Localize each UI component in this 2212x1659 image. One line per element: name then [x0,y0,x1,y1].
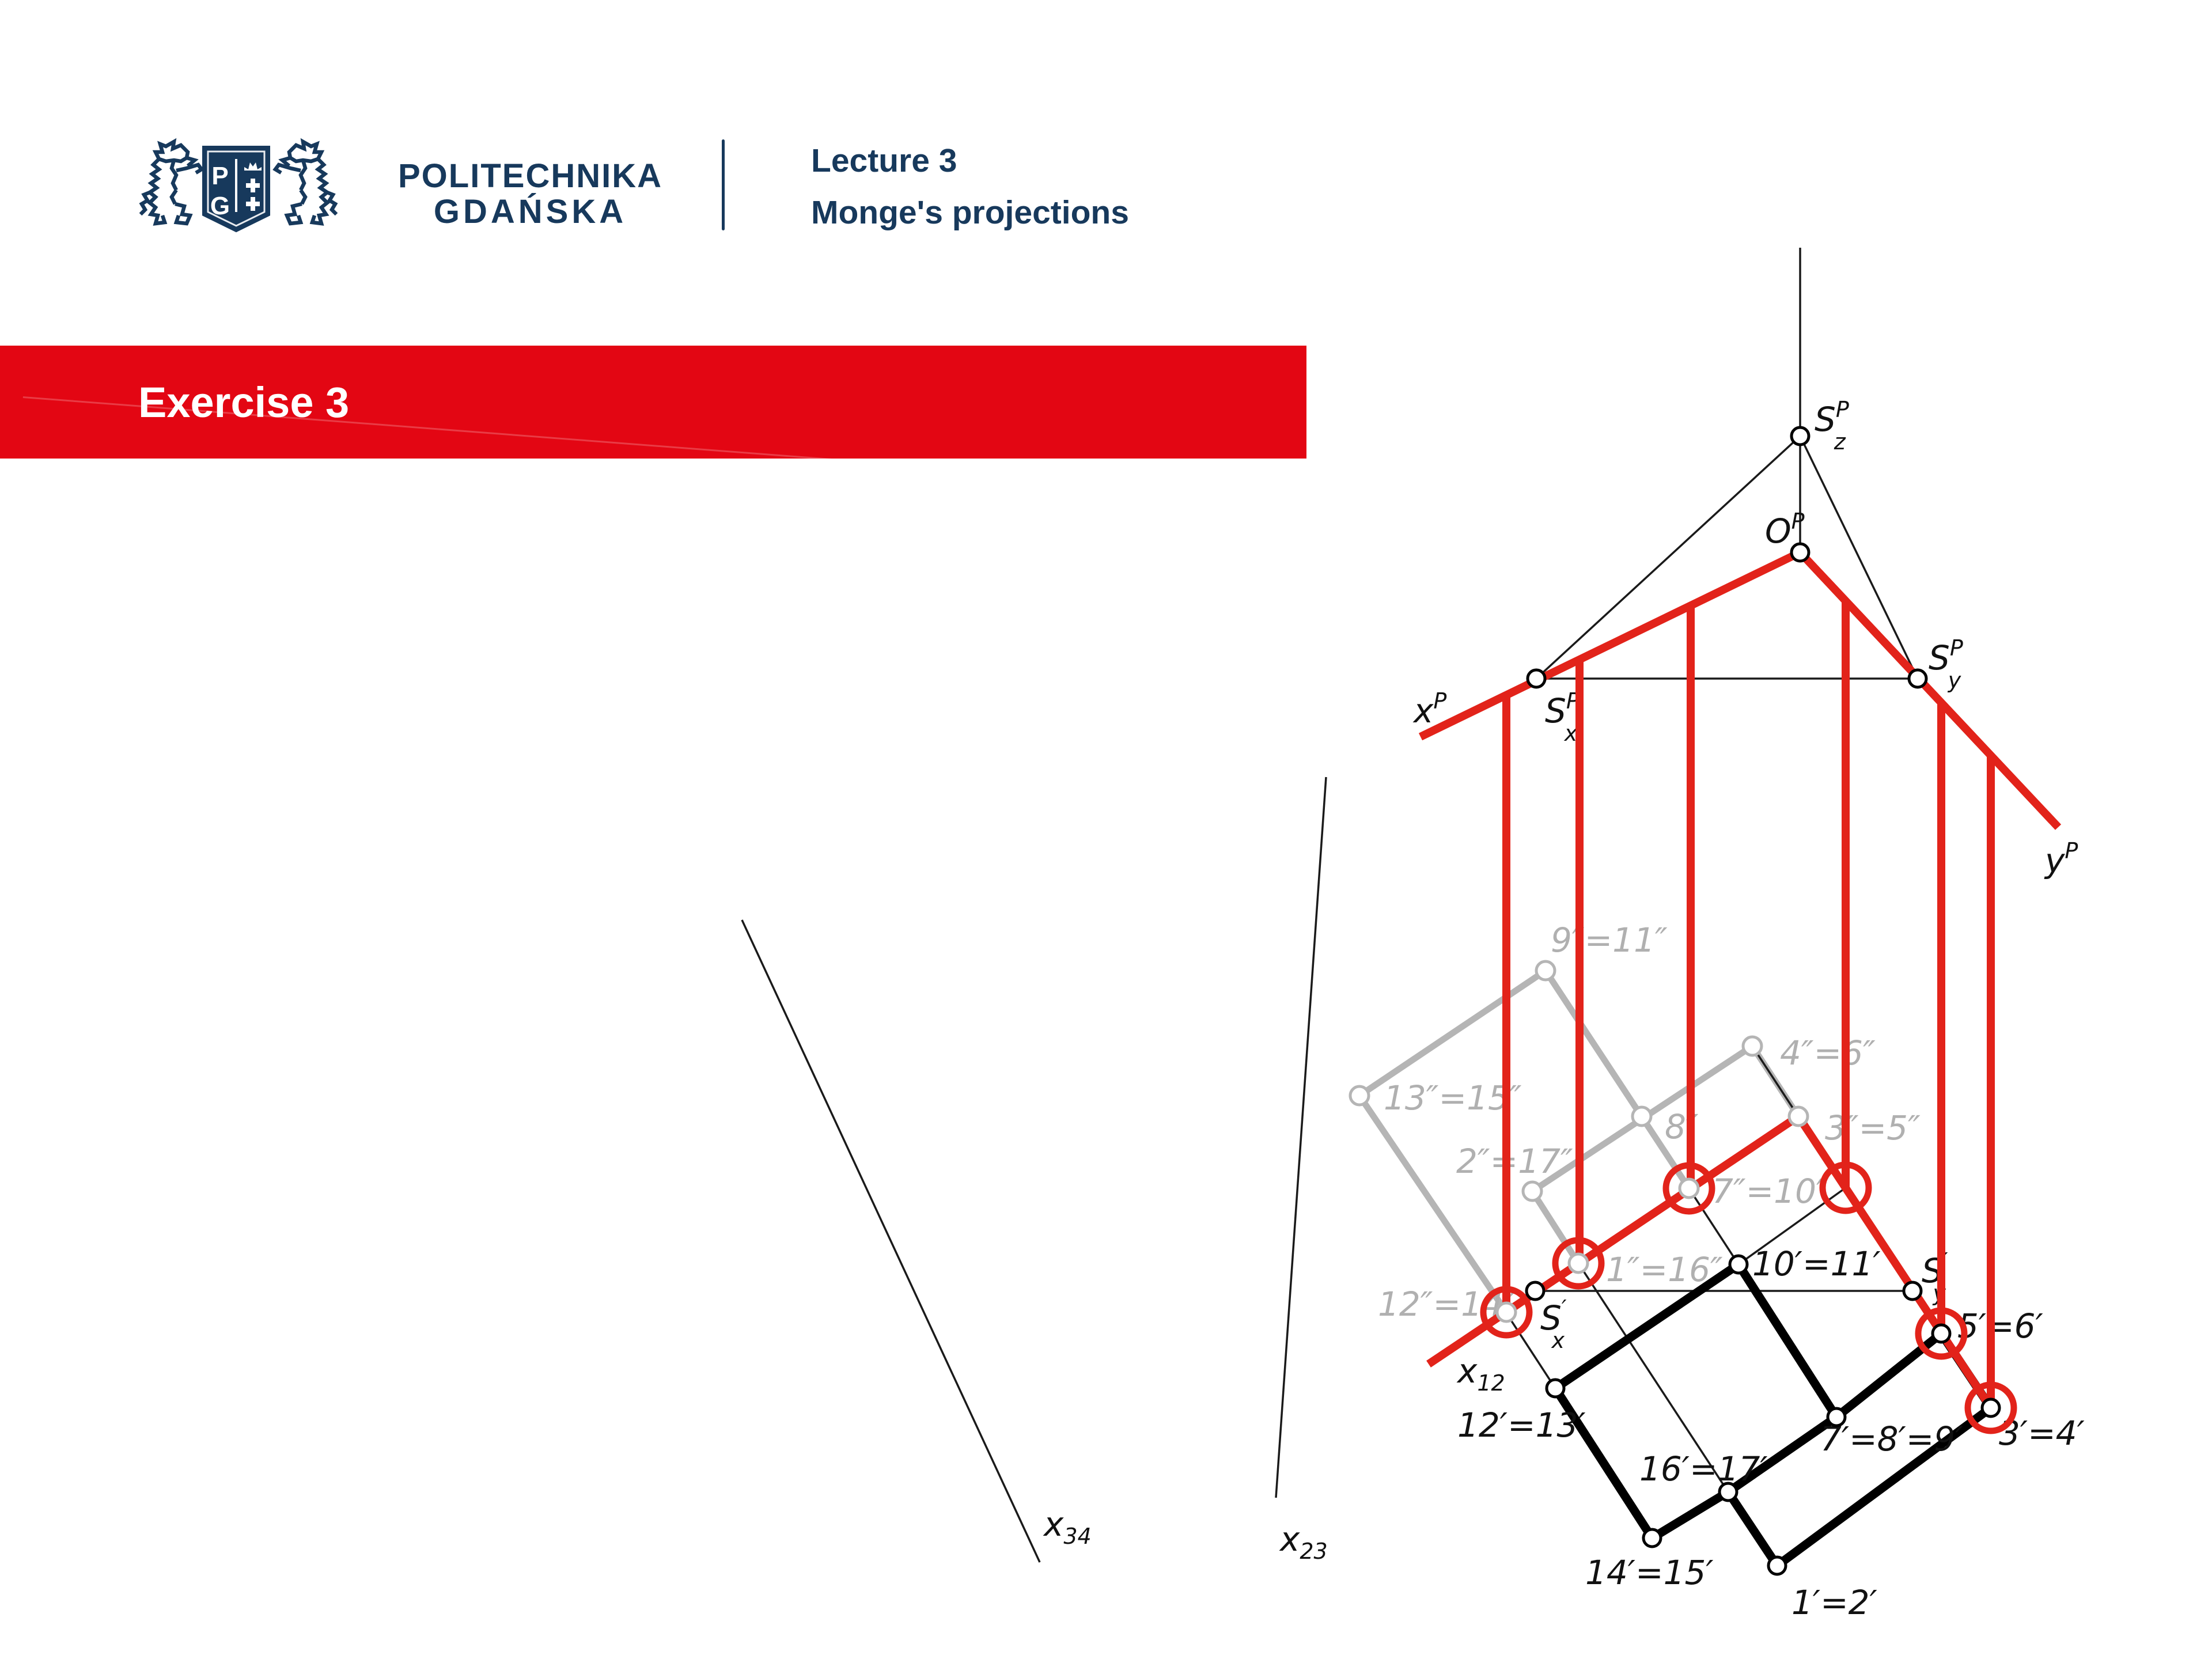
label-1-2: 1′=2′ [1791,1583,1877,1622]
point-8 [1633,1107,1651,1126]
top-view-edge-1-16 [1728,1492,1777,1566]
sz-sx-line [1536,436,1800,679]
label-3-5: 3″=5″ [1825,1108,1921,1147]
point-sx-prime [1527,1282,1544,1300]
point-sxp [1528,670,1545,687]
label-sx-prime: S′x [1540,1296,1567,1353]
point-sy-prime [1904,1282,1921,1300]
slide: P G POLITECHNIKA GDAŃSKA Lecture 3 Monge… [0,0,2212,1659]
label-12-13: 12′=13′ [1457,1406,1586,1445]
label-13-15: 13″=15″ [1384,1078,1522,1118]
monge-projection-drawing: 9″=11″13″=15″4″=6″8″3″=5″2″=17″7″=10″1″=… [0,0,2212,1659]
xp-axis [1421,552,1800,737]
point-16-17 [1719,1483,1737,1501]
label-sxp: SPx [1545,688,1580,746]
label-4-6: 4″=6″ [1780,1033,1876,1073]
grey-edge-9-13 [1359,971,1546,1096]
label-x12: x12 [1456,1351,1505,1396]
point-op [1791,544,1809,561]
label-x23: x23 [1279,1520,1328,1564]
sz-sy-line [1800,436,1918,679]
label-2-17: 2″=17″ [1456,1142,1573,1181]
point-7-10 [1680,1179,1698,1198]
label-10-11: 10′=11′ [1752,1244,1881,1283]
label-5-6: 5′=6′ [1957,1306,2043,1346]
point-szp [1791,427,1809,445]
label-14-15: 14′=15′ [1585,1553,1714,1592]
label-1-16: 1″=16″ [1606,1250,1723,1289]
point-12-13 [1547,1380,1564,1397]
label-syp: SPy [1929,635,1963,693]
point-10-11 [1730,1256,1747,1273]
point-2-17 [1523,1182,1541,1200]
point-syp [1909,670,1926,687]
yp-axis [1800,552,2058,827]
point-9-11 [1536,961,1555,980]
label-7-10: 7″=10″ [1712,1172,1829,1211]
label-szp: SPz [1815,397,1849,454]
point-3-5 [1789,1107,1808,1126]
point-5-6 [1933,1325,1950,1342]
label-9-11: 9″=11″ [1551,921,1668,960]
grey-edge-13-12 [1359,1096,1506,1312]
point-13-15 [1350,1086,1369,1105]
point-14-15 [1643,1529,1661,1547]
top-view-edge-10-7 [1738,1264,1836,1417]
point-4-6 [1743,1037,1762,1055]
point-3-4 [1982,1399,1999,1416]
x34-axis-line [742,920,1040,1562]
point-1-16 [1569,1254,1588,1272]
label-yp: yP [2044,838,2078,880]
top-view-edge-16-14 [1652,1492,1728,1538]
point-7-8-9 [1828,1408,1845,1426]
point-1-2 [1768,1557,1786,1574]
point-12-14 [1497,1303,1516,1321]
label-x34: x34 [1043,1505,1092,1549]
label-16-17: 16′=17′ [1639,1449,1768,1488]
x23-axis-line [1276,777,1326,1498]
